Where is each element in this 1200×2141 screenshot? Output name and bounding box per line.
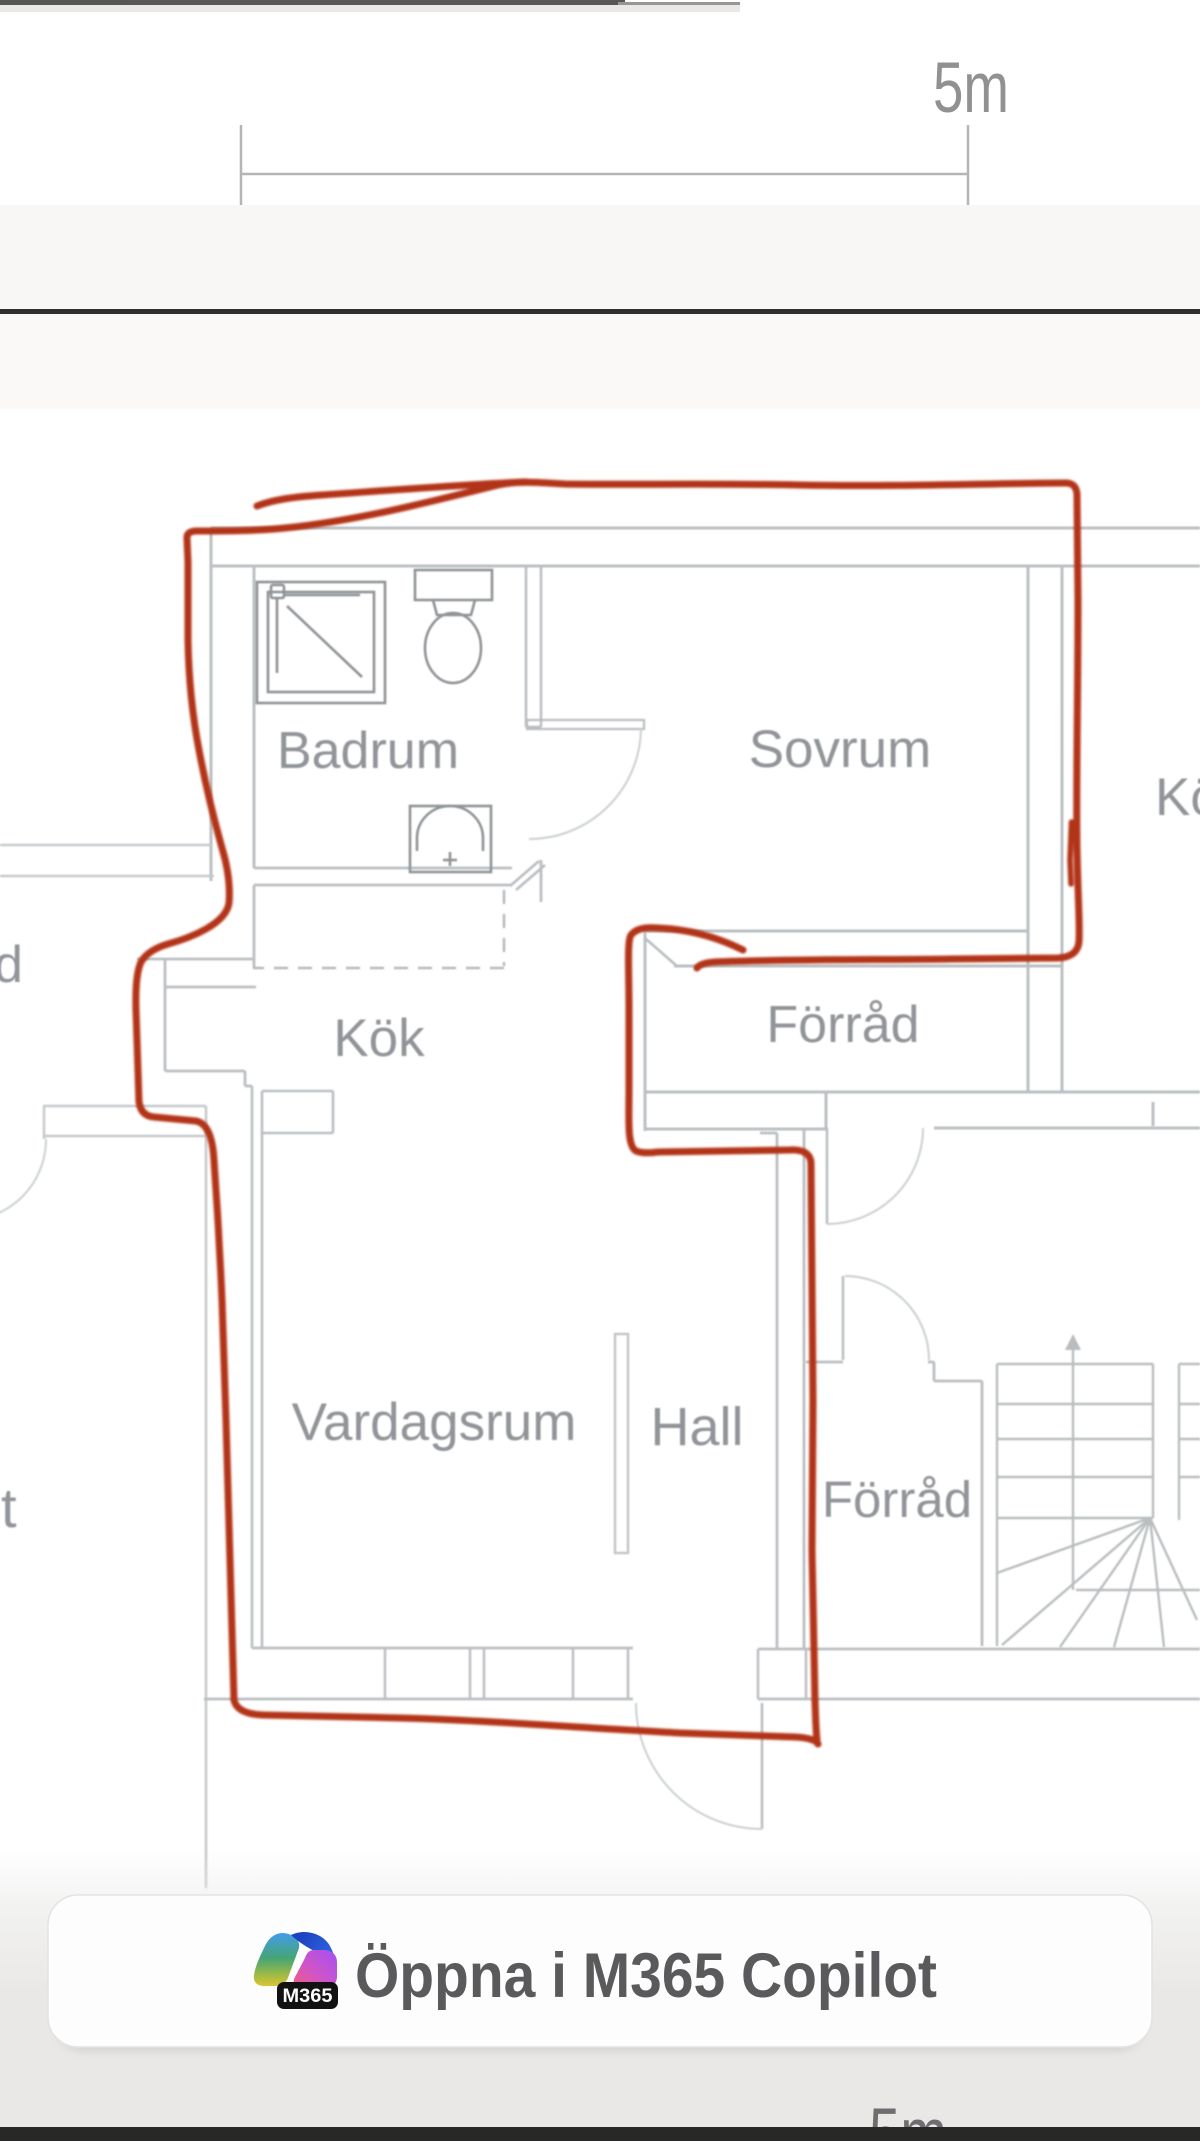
svg-text:Förråd: Förråd <box>822 1471 972 1528</box>
svg-text:Kök: Kök <box>333 1009 425 1068</box>
svg-text:Öppna i M365 Copilot: Öppna i M365 Copilot <box>355 1941 937 2011</box>
svg-text:Badrum: Badrum <box>277 722 459 780</box>
svg-text:Sovrum: Sovrum <box>749 720 932 779</box>
svg-text:Vardagsrum: Vardagsrum <box>292 1393 577 1452</box>
svg-text:Hall: Hall <box>650 1397 743 1457</box>
svg-text:Kök: Kök <box>1155 768 1200 827</box>
svg-text:Förråd: Förråd <box>766 996 919 1054</box>
svg-text:d: d <box>0 936 23 994</box>
svg-text:5m: 5m <box>933 49 1009 128</box>
svg-text:t: t <box>1 1476 17 1539</box>
svg-text:M365: M365 <box>283 1986 333 2007</box>
